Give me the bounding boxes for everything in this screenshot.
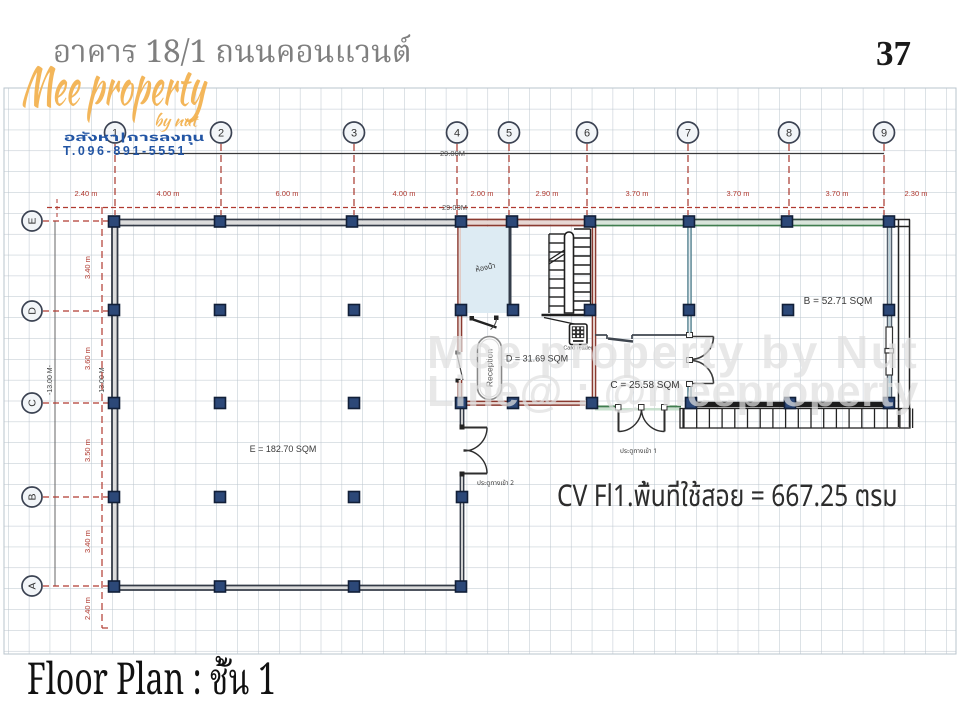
- svg-text:T.096-891-5551: T.096-891-5551: [63, 144, 187, 158]
- svg-text:3.40 m: 3.40 m: [83, 530, 92, 553]
- svg-text:3.70 m: 3.70 m: [727, 189, 750, 198]
- svg-text:4: 4: [454, 128, 460, 140]
- svg-text:2.40 m: 2.40 m: [75, 189, 98, 198]
- svg-text:B = 52.71 SQM: B = 52.71 SQM: [804, 296, 873, 307]
- svg-text:A: A: [27, 582, 39, 589]
- svg-text:5: 5: [506, 128, 512, 140]
- svg-text:3.40 m: 3.40 m: [83, 256, 92, 279]
- svg-text:3.50 m: 3.50 m: [83, 439, 92, 462]
- svg-text:E: E: [27, 217, 39, 224]
- svg-text:2.00 m: 2.00 m: [471, 189, 494, 198]
- svg-text:B: B: [27, 493, 39, 500]
- svg-text:2.30 m: 2.30 m: [905, 189, 928, 198]
- svg-text:7: 7: [685, 128, 691, 140]
- svg-text:3.70 m: 3.70 m: [626, 189, 649, 198]
- svg-text:4.00 m: 4.00 m: [393, 189, 416, 198]
- svg-text:4.00 m: 4.00 m: [157, 189, 180, 198]
- svg-text:D: D: [27, 307, 39, 315]
- svg-text:E = 182.70 SQM: E = 182.70 SQM: [250, 444, 317, 454]
- svg-text:2.40 m: 2.40 m: [83, 597, 92, 620]
- svg-text:29.00M: 29.00M: [440, 149, 465, 158]
- svg-text:3.60 m: 3.60 m: [83, 347, 92, 370]
- svg-text:37: 37: [876, 34, 911, 73]
- svg-text:-13.00 M-: -13.00 M-: [47, 364, 54, 395]
- svg-text:Line@ : @meeproperty: Line@ : @meeproperty: [427, 367, 919, 416]
- svg-text:29.00M: 29.00M: [442, 203, 467, 212]
- svg-text:C: C: [27, 399, 39, 407]
- svg-text:C = 25.58 SQM: C = 25.58 SQM: [610, 380, 679, 391]
- svg-text:6.00 m: 6.00 m: [276, 189, 299, 198]
- svg-text:2: 2: [218, 128, 224, 140]
- svg-text:3.70 m: 3.70 m: [826, 189, 849, 198]
- svg-text:3: 3: [351, 128, 357, 140]
- svg-text:6: 6: [584, 128, 590, 140]
- svg-text:8: 8: [786, 128, 792, 140]
- svg-text:-13.00 M-: -13.00 M-: [99, 364, 106, 395]
- svg-text:D = 31.69 SQM: D = 31.69 SQM: [506, 354, 568, 364]
- svg-text:9: 9: [881, 128, 887, 140]
- svg-text:2.90 m: 2.90 m: [536, 189, 559, 198]
